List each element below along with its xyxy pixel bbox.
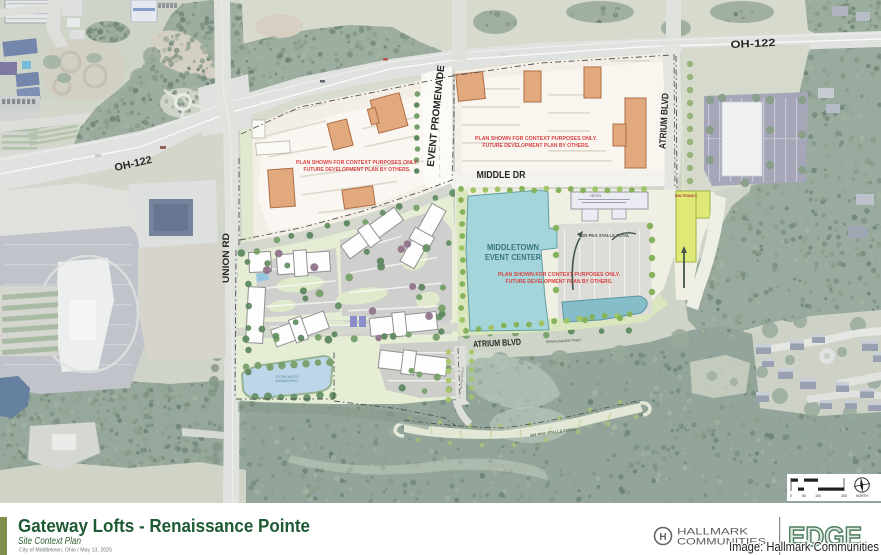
- svg-text:Gateway Lofts - Renaissance Po: Gateway Lofts - Renaissance Pointe: [18, 516, 310, 536]
- svg-text:Image: Hallmark Communities: Image: Hallmark Communities: [729, 539, 879, 554]
- svg-text:H: H: [659, 532, 666, 543]
- svg-text:Site Context Plan: Site Context Plan: [18, 536, 81, 547]
- svg-text:City of Middletown, Ohio / M: City of Middletown, Ohio / May 13, 2025: [19, 548, 112, 554]
